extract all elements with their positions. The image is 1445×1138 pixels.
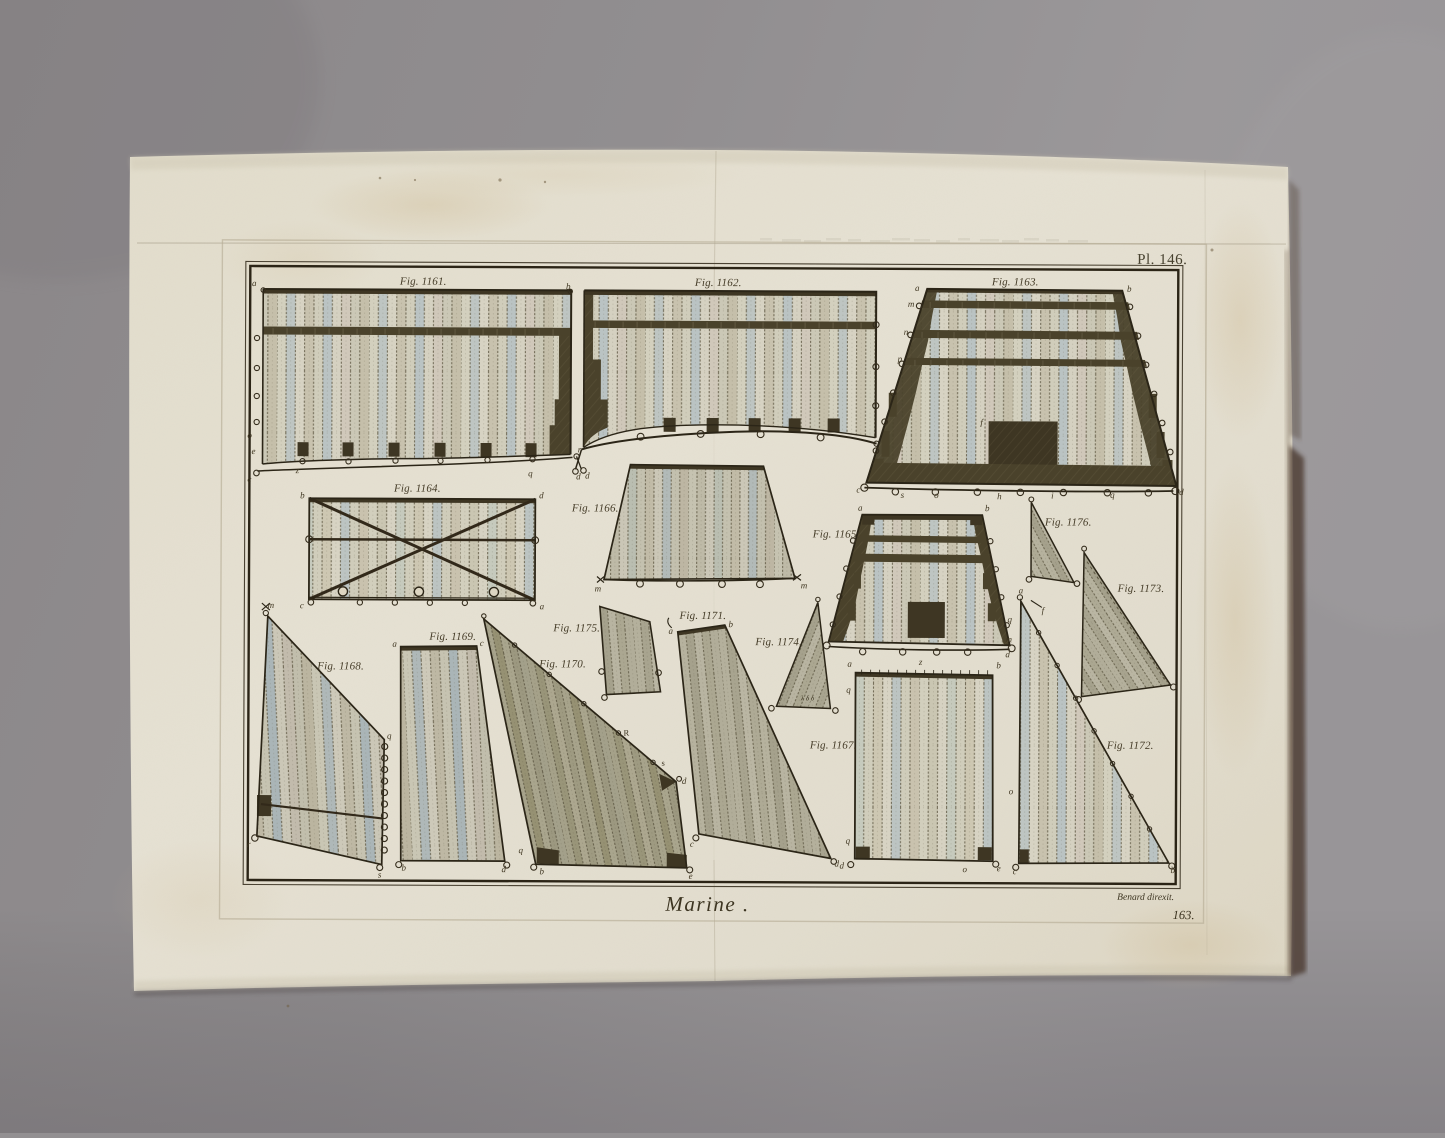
- svg-text:b: b: [401, 863, 406, 873]
- svg-text:c: c: [1013, 866, 1017, 876]
- svg-text:e: e: [689, 871, 693, 881]
- svg-text:c: c: [300, 600, 304, 610]
- svg-text:s: s: [901, 490, 905, 500]
- svg-text:Fig. 1167.: Fig. 1167.: [809, 739, 857, 751]
- svg-text:z: z: [918, 657, 923, 667]
- svg-text:d: d: [1005, 649, 1010, 659]
- svg-text:d: d: [539, 490, 544, 500]
- svg-text:o: o: [247, 430, 252, 440]
- svg-text:d: d: [585, 470, 590, 480]
- svg-text:b: b: [985, 503, 990, 513]
- svg-text:q: q: [846, 685, 851, 695]
- svg-text:a: a: [847, 659, 852, 669]
- svg-text:c: c: [247, 474, 251, 484]
- svg-text:o: o: [934, 490, 939, 500]
- svg-text:a: a: [540, 601, 545, 611]
- svg-text:n: n: [904, 327, 909, 337]
- svg-text:o: o: [962, 864, 967, 874]
- svg-text:q: q: [528, 468, 533, 478]
- svg-text:p: p: [897, 354, 903, 364]
- svg-text:a: a: [392, 639, 397, 649]
- svg-text:Fig. 1176.: Fig. 1176.: [1044, 516, 1092, 528]
- svg-text:λ δ δ: λ δ δ: [800, 694, 815, 702]
- svg-text:Fig. 1173.: Fig. 1173.: [1117, 583, 1165, 595]
- svg-text:s: s: [378, 870, 382, 880]
- svg-text:b: b: [996, 660, 1001, 670]
- svg-text:q: q: [387, 731, 392, 741]
- svg-text:m: m: [908, 299, 915, 309]
- svg-text:b: b: [729, 619, 734, 629]
- svg-text:Fig. 1166.: Fig. 1166.: [571, 502, 619, 514]
- svg-text:b: b: [566, 281, 571, 291]
- svg-text:d: d: [501, 864, 506, 874]
- svg-text:a: a: [915, 283, 920, 293]
- svg-text:q: q: [846, 836, 851, 846]
- svg-text:m: m: [801, 580, 808, 590]
- svg-text:a: a: [668, 626, 673, 636]
- svg-text:163.: 163.: [1173, 908, 1195, 922]
- svg-text:Fig. 1161.: Fig. 1161.: [399, 276, 447, 288]
- svg-text:c: c: [480, 638, 484, 648]
- svg-text:r: r: [578, 444, 582, 454]
- svg-text:Fig. 1168.: Fig. 1168.: [316, 660, 364, 672]
- svg-text:Fig. 1164.: Fig. 1164.: [393, 483, 441, 495]
- svg-text:d: d: [1179, 487, 1184, 497]
- svg-text:Fig. 1169.: Fig. 1169.: [428, 631, 476, 643]
- svg-text:d: d: [839, 861, 844, 871]
- svg-text:a: a: [1019, 585, 1024, 595]
- svg-text:e: e: [997, 863, 1001, 873]
- svg-text:a: a: [252, 278, 257, 288]
- svg-text:q: q: [519, 845, 524, 855]
- svg-text:Fig. 1171.: Fig. 1171.: [678, 610, 726, 622]
- svg-text:r: r: [247, 839, 251, 849]
- svg-text:Fig. 1162.: Fig. 1162.: [694, 277, 742, 289]
- svg-text:Fig. 1163.: Fig. 1163.: [991, 276, 1039, 288]
- svg-text:h: h: [997, 491, 1002, 501]
- svg-text:m: m: [595, 583, 602, 593]
- svg-text:d: d: [576, 471, 581, 481]
- svg-text:Pl. 146.: Pl. 146.: [1137, 252, 1187, 268]
- svg-text:e: e: [252, 446, 256, 456]
- svg-text:q: q: [1110, 490, 1115, 500]
- svg-text:c: c: [690, 839, 694, 849]
- svg-text:Benard direxit.: Benard direxit.: [1117, 893, 1174, 903]
- svg-text:o: o: [1009, 786, 1014, 796]
- svg-text:q: q: [1008, 614, 1013, 624]
- svg-text:Fig. 1165.: Fig. 1165.: [812, 528, 860, 540]
- svg-text:a: a: [858, 503, 863, 513]
- svg-text:b: b: [300, 490, 305, 500]
- svg-text:b: b: [539, 866, 544, 876]
- svg-text:m: m: [1005, 634, 1012, 644]
- svg-text:Fig. 1172.: Fig. 1172.: [1106, 740, 1154, 752]
- svg-text:Fig. 1170.: Fig. 1170.: [538, 658, 586, 670]
- svg-text:Fig. 1174.: Fig. 1174.: [754, 636, 802, 648]
- svg-text:Fig. 1175.: Fig. 1175.: [552, 622, 600, 634]
- svg-text:c: c: [856, 485, 860, 495]
- svg-text:m: m: [268, 600, 275, 610]
- svg-text:d: d: [682, 776, 687, 786]
- svg-text:s: s: [662, 758, 665, 768]
- svg-text:b: b: [1170, 865, 1175, 875]
- svg-text:z: z: [295, 465, 300, 475]
- svg-text:Marine .: Marine .: [664, 892, 749, 916]
- svg-text:b: b: [1127, 284, 1132, 294]
- svg-text:R: R: [623, 728, 629, 738]
